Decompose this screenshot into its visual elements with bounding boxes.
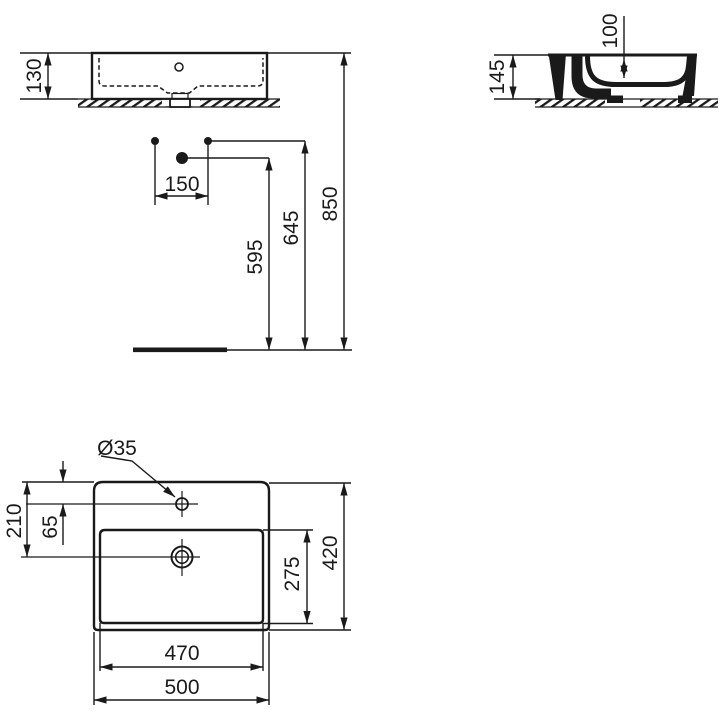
basin-shell-section — [588, 56, 690, 85]
dimension-210: 210 — [3, 482, 27, 557]
dimension-595: 595 — [244, 158, 269, 350]
dim-label-basin-width: 470 — [164, 642, 199, 665]
dimension-100: 100 — [599, 13, 624, 78]
dimension-420: 420 — [319, 483, 344, 630]
dim-label-basin-depth-plan: 275 — [281, 556, 304, 591]
dimension-645: 645 — [280, 141, 305, 350]
plan-view: Ø35 210 65 275 420 — [3, 437, 351, 705]
dim-label-rim-height: 850 — [319, 186, 342, 221]
dim-label-outer-depth: 420 — [319, 535, 342, 570]
dimension-150: 150 — [155, 173, 208, 196]
hatch-fill — [640, 99, 718, 107]
dim-label-drain-height: 595 — [244, 239, 267, 274]
dim-label-faucet-diameter: Ø35 — [97, 437, 137, 460]
dim-label-faucet-offset: 65 — [39, 515, 62, 538]
dimension-850: 850 — [319, 53, 344, 350]
dim-label-front-height: 130 — [23, 58, 46, 93]
dimension-130: 130 — [20, 53, 78, 99]
hatch-fill — [535, 99, 605, 107]
washbasin-dimension-drawing: 130 145 100 — [0, 0, 727, 727]
dim-label-basin-depth-side: 100 — [599, 13, 622, 48]
back-wall-section — [549, 54, 567, 101]
basin-outline-front — [92, 53, 267, 99]
technical-drawing: 130 145 100 — [0, 0, 727, 727]
dimension-500: 500 — [94, 676, 269, 700]
counter-section-side — [535, 99, 718, 107]
drain-pipe-section — [170, 99, 190, 107]
side-view: 145 100 — [486, 13, 718, 107]
dimension-145: 145 — [486, 55, 548, 99]
dimension-470: 470 — [100, 642, 263, 667]
dimension-275: 275 — [281, 530, 307, 624]
dimension-65: 65 — [39, 461, 63, 545]
front-view: 130 — [20, 53, 351, 107]
dim-label-fixing-height: 645 — [280, 210, 303, 245]
dim-label-drain-offset: 210 — [3, 503, 26, 538]
dim-label-hole-spacing: 150 — [164, 173, 199, 196]
dim-label-outer-width: 500 — [164, 676, 199, 699]
dim-label-side-height: 145 — [486, 59, 509, 94]
